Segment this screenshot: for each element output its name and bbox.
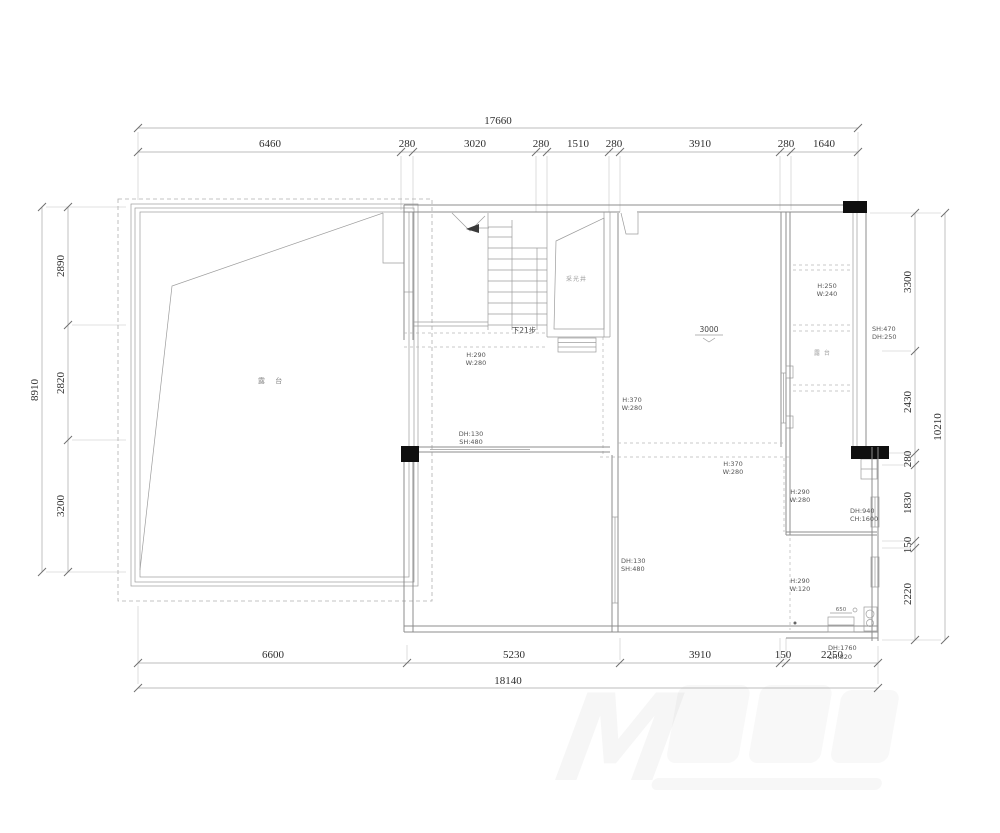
dim-left-seg-2: 3200	[55, 495, 67, 518]
dim-top-seg-6: 3910	[689, 138, 712, 150]
door-swing	[621, 213, 638, 234]
dim-top-seg-2: 3020	[464, 138, 487, 150]
mid-right-opening-l1: H:290	[790, 488, 809, 496]
opening-under-stair-l2: W:280	[466, 359, 487, 367]
corridor-window-l1: DH:130	[459, 430, 484, 438]
dim-top-seg-8: 1640	[813, 138, 836, 150]
dimension-chain-left: 8910 2890 2820 3200	[29, 203, 126, 576]
dim-left-seg-0: 2890	[55, 255, 67, 278]
structural-columns	[401, 201, 889, 462]
dimension-chain-bottom: 6600 5230 3910 150 2250 18140	[134, 606, 882, 692]
dim-left-total: 8910	[29, 379, 41, 402]
toilet-fixture	[864, 607, 877, 631]
left-room-window-l2: SH:480	[621, 565, 645, 573]
dimension-chain-top: 17660 6460 280 3020 280 1510 280 3910 28…	[134, 115, 862, 212]
bath-door-l2: CH:820	[828, 653, 852, 661]
floor-plan-canvas: M 17660 6460 280 3020 280 1510 280 3910	[0, 0, 1000, 833]
stair-direction-arrow-icon	[466, 224, 479, 233]
elevation-value: 3000	[699, 325, 718, 334]
staircase: 下21步	[413, 212, 547, 337]
strip-window-l2: DH:250	[872, 333, 897, 341]
column-top-right	[843, 201, 867, 213]
floor-plan-drawing: M 17660 6460 280 3020 280 1510 280 3910	[0, 0, 1000, 833]
strip-opening-l1: H:250	[817, 282, 836, 290]
mid-right-opening-l2: W:280	[790, 496, 811, 504]
terrace-west: 露 台	[118, 199, 432, 601]
dim-right-seg-5: 2220	[902, 583, 914, 606]
main-opening-left-l1: H:370	[622, 396, 641, 404]
terrace-east-label: 露 台	[814, 349, 831, 357]
main-opening-bottom-l1: H:370	[723, 460, 742, 468]
left-room-window-l1: DH:130	[621, 557, 646, 565]
dim-top-seg-7: 280	[778, 138, 795, 150]
mid-right-window-l2: CH:1600	[850, 515, 878, 523]
dim-right-seg-1: 2430	[902, 391, 914, 414]
dim-bottom-total: 18140	[494, 675, 522, 687]
main-opening-bottom-l2: W:280	[723, 468, 744, 476]
main-room: 3000 H:370 W:280	[600, 212, 793, 457]
dim-top-seg-0: 6460	[259, 138, 282, 150]
stair-note: 下21步	[512, 326, 537, 335]
cabinet-fixture: 650	[828, 607, 857, 632]
dim-top-seg-1: 280	[399, 138, 416, 150]
dim-bottom-seg-3: 150	[775, 649, 792, 661]
elevation-marker: 3000	[695, 325, 723, 342]
bath-opening-l2: W:120	[790, 585, 811, 593]
bath-door-l1: DH:1760	[828, 644, 857, 652]
strip-window-l1: SH:470	[872, 325, 896, 333]
terrace-west-label: 露 台	[258, 376, 286, 385]
light-well-ladder	[558, 338, 596, 352]
dim-bottom-seg-0: 6600	[262, 649, 285, 661]
bath-opening-l1: H:290	[790, 577, 809, 585]
dim-top-seg-3: 280	[533, 138, 550, 150]
watermark: M	[547, 669, 904, 809]
dim-top-total: 17660	[484, 115, 512, 127]
dim-top-seg-4: 1510	[567, 138, 590, 150]
strip-opening-l2: W:240	[817, 290, 838, 298]
column-mid-right	[851, 446, 889, 459]
light-well-label: 采光井	[566, 275, 587, 283]
opening-under-stair-l1: H:290	[466, 351, 485, 359]
dim-left-seg-1: 2820	[55, 372, 67, 395]
dim-bottom-seg-2: 3910	[689, 649, 712, 661]
mid-right-window-l1: DH:940	[850, 507, 875, 515]
dim-right-seg-3: 1830	[902, 492, 914, 515]
column-mid-left	[401, 446, 419, 462]
corridor-window-l2: SH:480	[459, 438, 483, 446]
dim-bottom-seg-1: 5230	[503, 649, 526, 661]
dim-right-seg-4: 150	[902, 536, 914, 553]
terrace-east-strip: H:250 W:240 露 台 SH:470 DH:250	[790, 205, 897, 479]
dimension-chain-right: 3300 2430 280 1830 150 2220 10210	[870, 209, 949, 644]
dim-top-seg-5: 280	[606, 138, 623, 150]
exterior-walls-top	[404, 205, 866, 340]
corridor: H:290 W:280 DH:130 SH:480	[404, 333, 610, 457]
dim-right-seg-2: 280	[902, 450, 914, 467]
cabinet-dim: 650	[836, 607, 847, 613]
floor-drain-icon	[794, 622, 797, 625]
lower-middle-room: DH:130 SH:480 H:370 W:280	[621, 458, 784, 573]
lower-left-room	[404, 455, 878, 632]
light-well: 采光井	[547, 212, 610, 352]
dim-right-total: 10210	[932, 413, 944, 441]
main-opening-left-l2: W:280	[622, 404, 643, 412]
dim-right-seg-0: 3300	[902, 271, 914, 294]
